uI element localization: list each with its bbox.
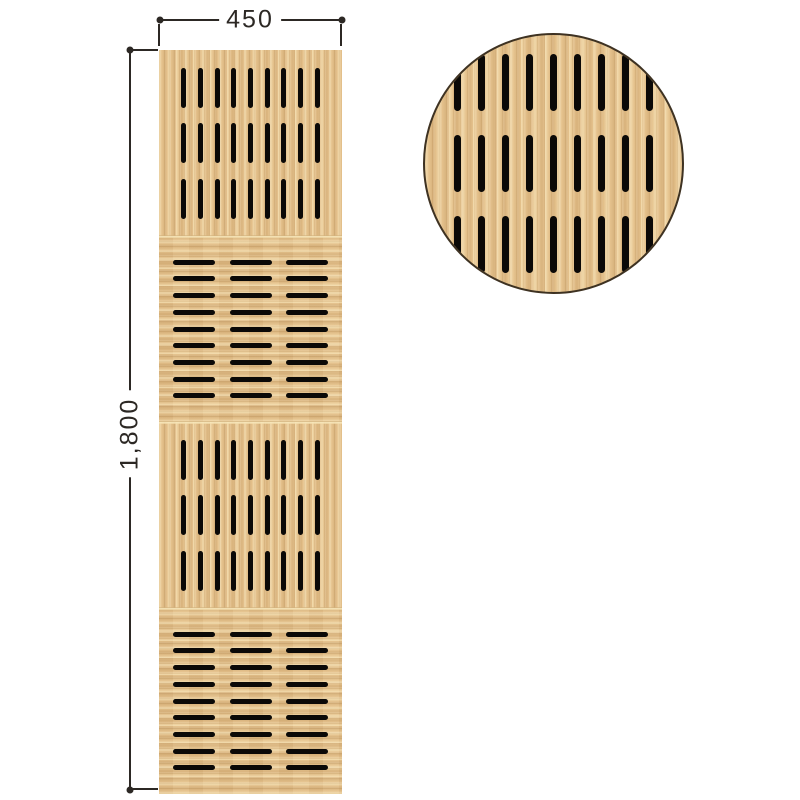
slot [198,179,203,219]
slot [574,216,581,273]
slot [173,765,215,770]
slot [550,135,557,192]
slot [230,393,272,398]
slot [502,54,509,111]
slot [526,54,533,111]
slot [550,216,557,273]
slot [622,135,629,192]
slot [198,495,203,535]
height-extension-line-top [133,49,158,51]
slot [646,216,653,273]
slot [173,377,215,382]
height-dimension-label: 1,800 [116,391,145,478]
slot [248,68,253,108]
slot [286,393,328,398]
slot [286,732,328,737]
slot [230,632,272,637]
drawing-canvas: 450 1,800 [0,0,800,800]
slot [230,715,272,720]
slot [286,699,328,704]
slot [230,327,272,332]
slot [248,440,253,480]
slot [286,327,328,332]
slot [286,665,328,670]
panel-section-2-horizontal-slots [159,236,342,422]
slot [230,699,272,704]
slot [315,179,320,219]
slot [286,632,328,637]
acoustic-panel [159,50,342,794]
slot [315,551,320,591]
slot [215,68,220,108]
slot [173,699,215,704]
slot [230,377,272,382]
slot [230,276,272,281]
slot [286,310,328,315]
slot [230,310,272,315]
slot [181,495,186,535]
slot [248,495,253,535]
slot [286,276,328,281]
slot [286,260,328,265]
slot [230,260,272,265]
slot [173,665,215,670]
slot [173,393,215,398]
slot [298,123,303,163]
width-dimension-dot-right [338,17,345,24]
height-extension-line-bottom [133,788,158,790]
slot [646,135,653,192]
slot [574,54,581,111]
slot [315,440,320,480]
slot [281,440,286,480]
slot [248,179,253,219]
slot [286,749,328,754]
slot [286,715,328,720]
slot [265,495,270,535]
slot [230,648,272,653]
slot [181,440,186,480]
slot [231,551,236,591]
slot [230,343,272,348]
detail-slot-pattern [425,35,682,292]
slot [298,495,303,535]
slot [198,551,203,591]
slot [215,551,220,591]
panel-section-3-vertical-slots [159,422,342,608]
slot [265,551,270,591]
slot [454,54,461,111]
slot [230,749,272,754]
width-dimension-label: 450 [219,6,281,35]
slot [286,682,328,687]
slot [315,68,320,108]
slot [281,68,286,108]
slot [286,377,328,382]
slot [574,135,581,192]
slot [646,54,653,111]
slot [173,732,215,737]
panel-section-4-horizontal-slots [159,608,342,794]
slot [230,293,272,298]
slot [173,715,215,720]
slot [315,495,320,535]
slot [231,68,236,108]
slot [230,765,272,770]
slot [231,440,236,480]
slot [198,440,203,480]
slot [265,123,270,163]
slot [181,68,186,108]
slot [198,68,203,108]
slot [230,682,272,687]
slot [173,360,215,365]
slot [281,123,286,163]
slot [173,632,215,637]
slot [281,495,286,535]
slot [230,665,272,670]
slot [298,440,303,480]
slot [526,216,533,273]
slot [622,216,629,273]
slot [248,551,253,591]
slot [173,749,215,754]
slot [478,54,485,111]
slot [315,123,320,163]
slot [248,123,253,163]
slot [181,123,186,163]
slot [198,123,203,163]
slot [286,648,328,653]
slot [173,260,215,265]
slot [231,495,236,535]
slot [478,216,485,273]
slot [298,68,303,108]
slot [281,551,286,591]
slot [173,293,215,298]
slot [231,179,236,219]
slot [265,440,270,480]
slot [173,343,215,348]
slot [454,135,461,192]
slot [526,135,533,192]
slot [454,216,461,273]
panel-seam [159,421,342,424]
slot [215,123,220,163]
height-dimension-dot-top [127,47,134,54]
slot [173,310,215,315]
slot [231,123,236,163]
slot [286,343,328,348]
panel-seam [159,607,342,610]
panel-section-1-vertical-slots [159,50,342,236]
slot [298,551,303,591]
slot [173,327,215,332]
slot [502,135,509,192]
slot [215,179,220,219]
slot [173,682,215,687]
slot [230,360,272,365]
width-extension-line-right [340,24,342,46]
panel-seam [159,235,342,238]
slot [181,179,186,219]
slot [550,54,557,111]
slot [265,68,270,108]
slot [181,551,186,591]
slot [598,54,605,111]
slot [598,216,605,273]
height-dimension-dot-bottom [127,787,134,794]
slot [265,179,270,219]
slot [173,276,215,281]
slot [230,732,272,737]
slot [215,440,220,480]
slot [478,135,485,192]
slot [215,495,220,535]
slot [598,135,605,192]
slot [286,765,328,770]
slot [286,360,328,365]
slot [502,216,509,273]
detail-circle [423,33,684,294]
slot [286,293,328,298]
slot [298,179,303,219]
slot [281,179,286,219]
width-extension-line-left [158,24,160,46]
width-dimension-dot-left [156,17,163,24]
slot [173,648,215,653]
slot [622,54,629,111]
